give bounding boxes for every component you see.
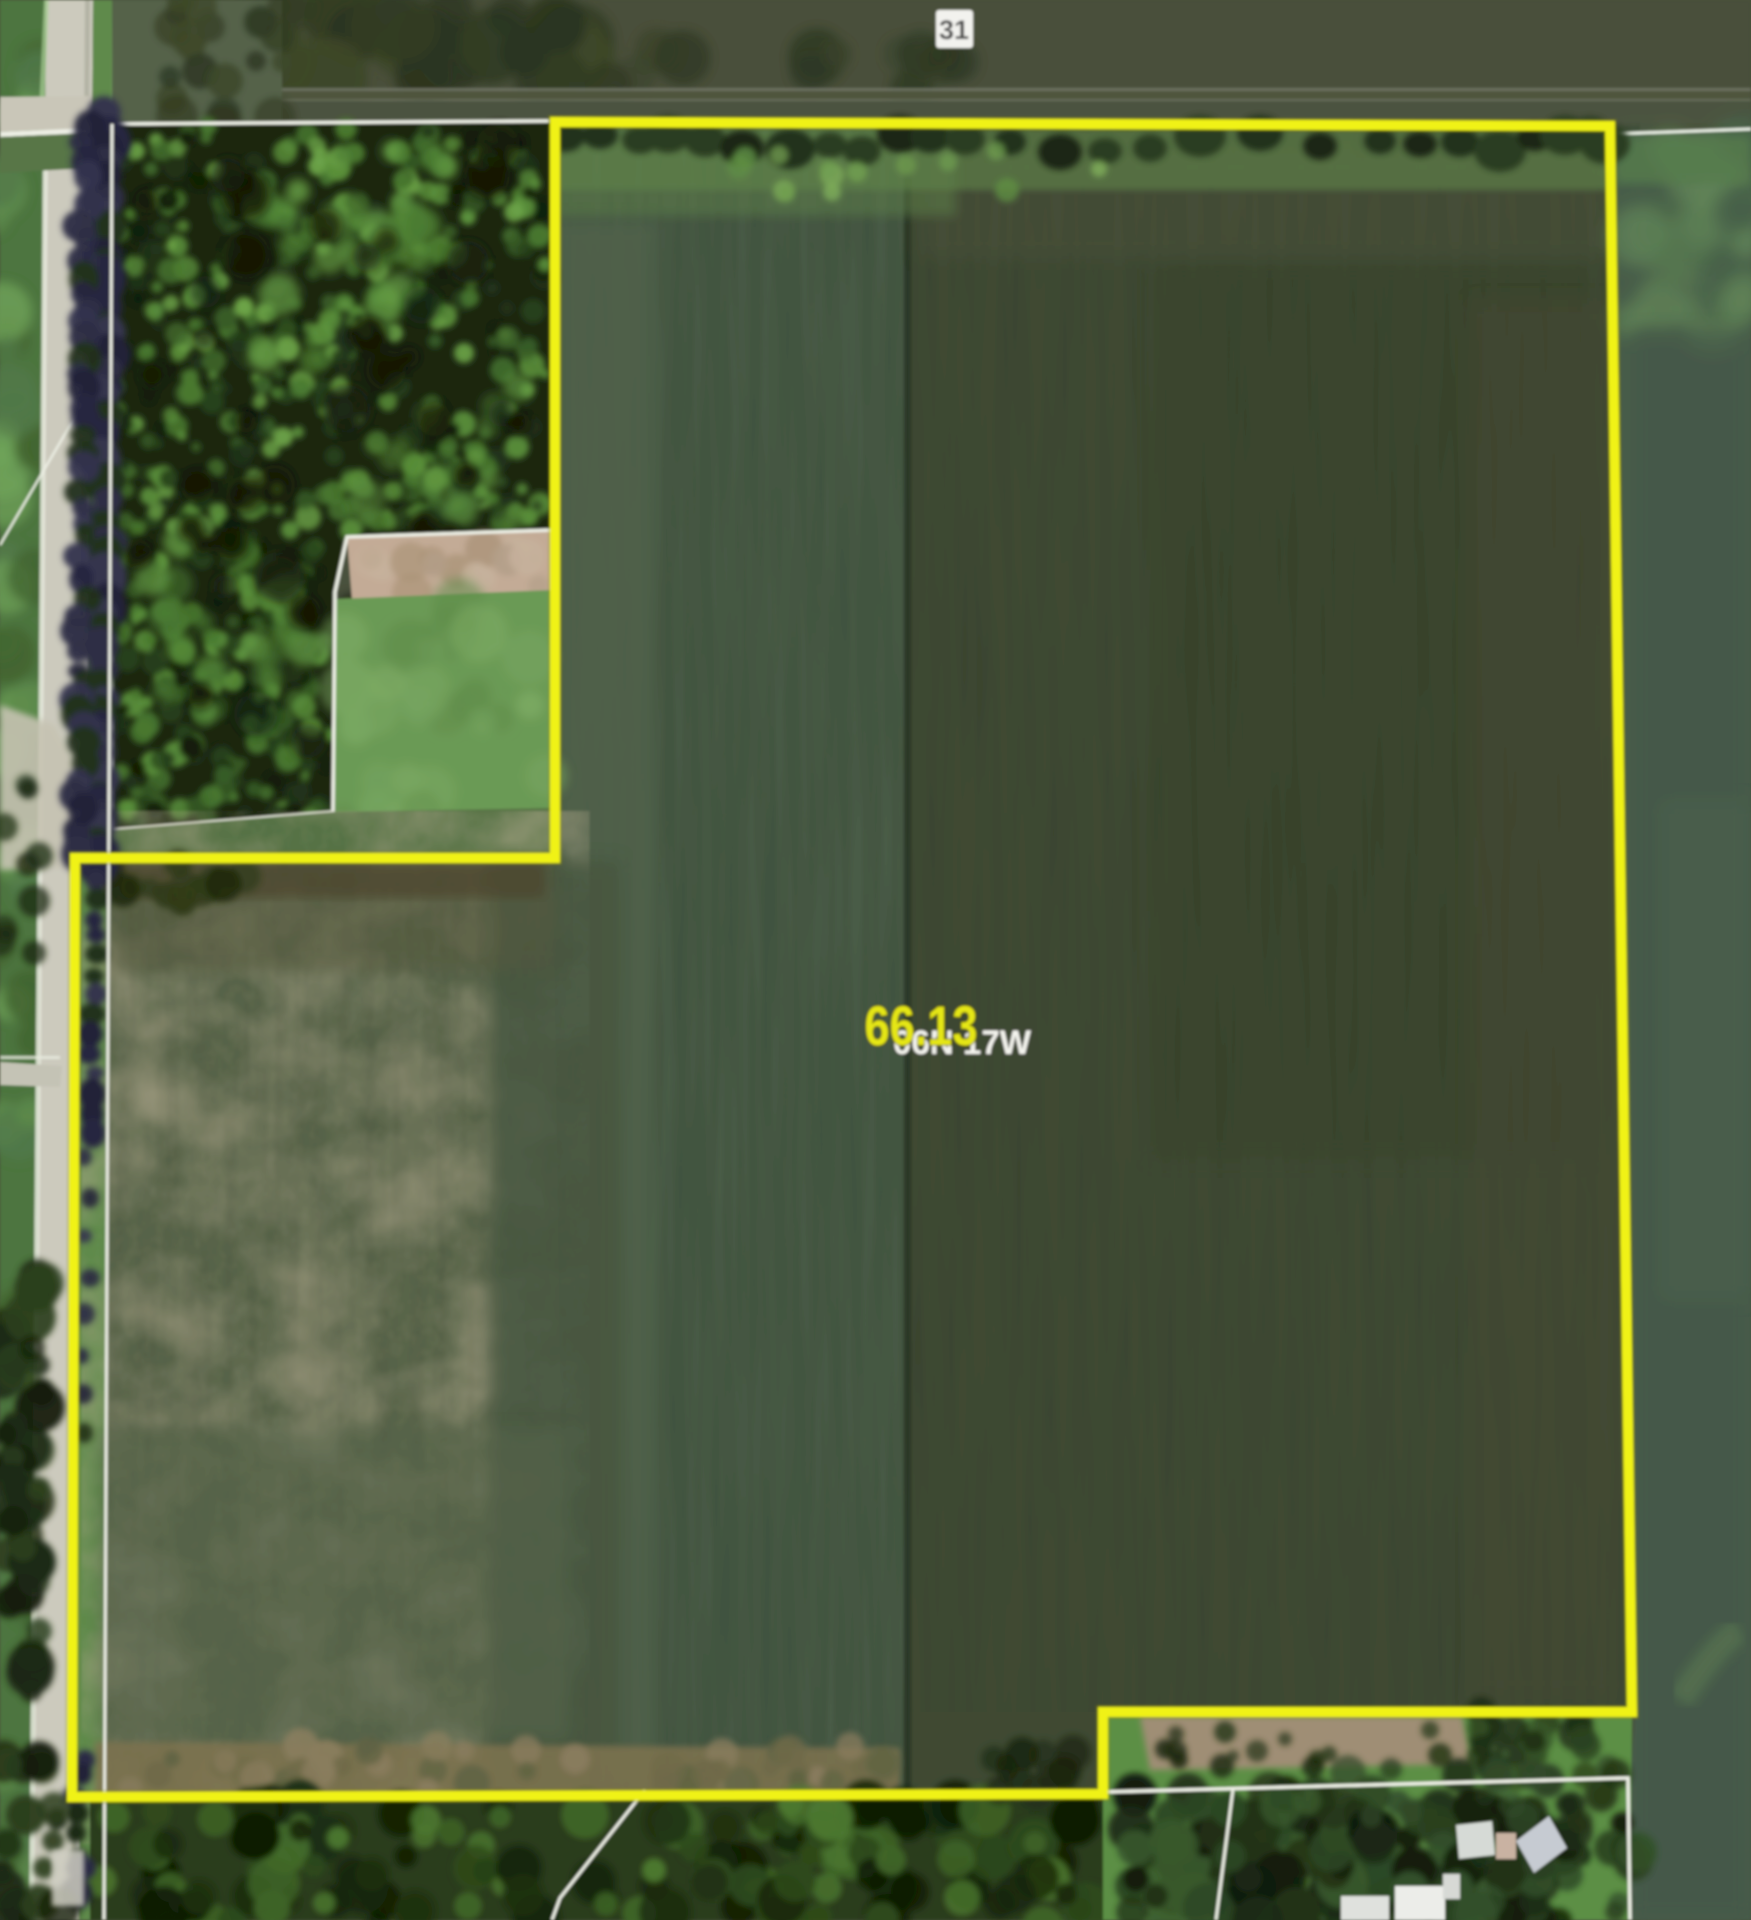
svg-text:66.13: 66.13: [865, 994, 978, 1057]
svg-text:31: 31: [939, 15, 969, 45]
